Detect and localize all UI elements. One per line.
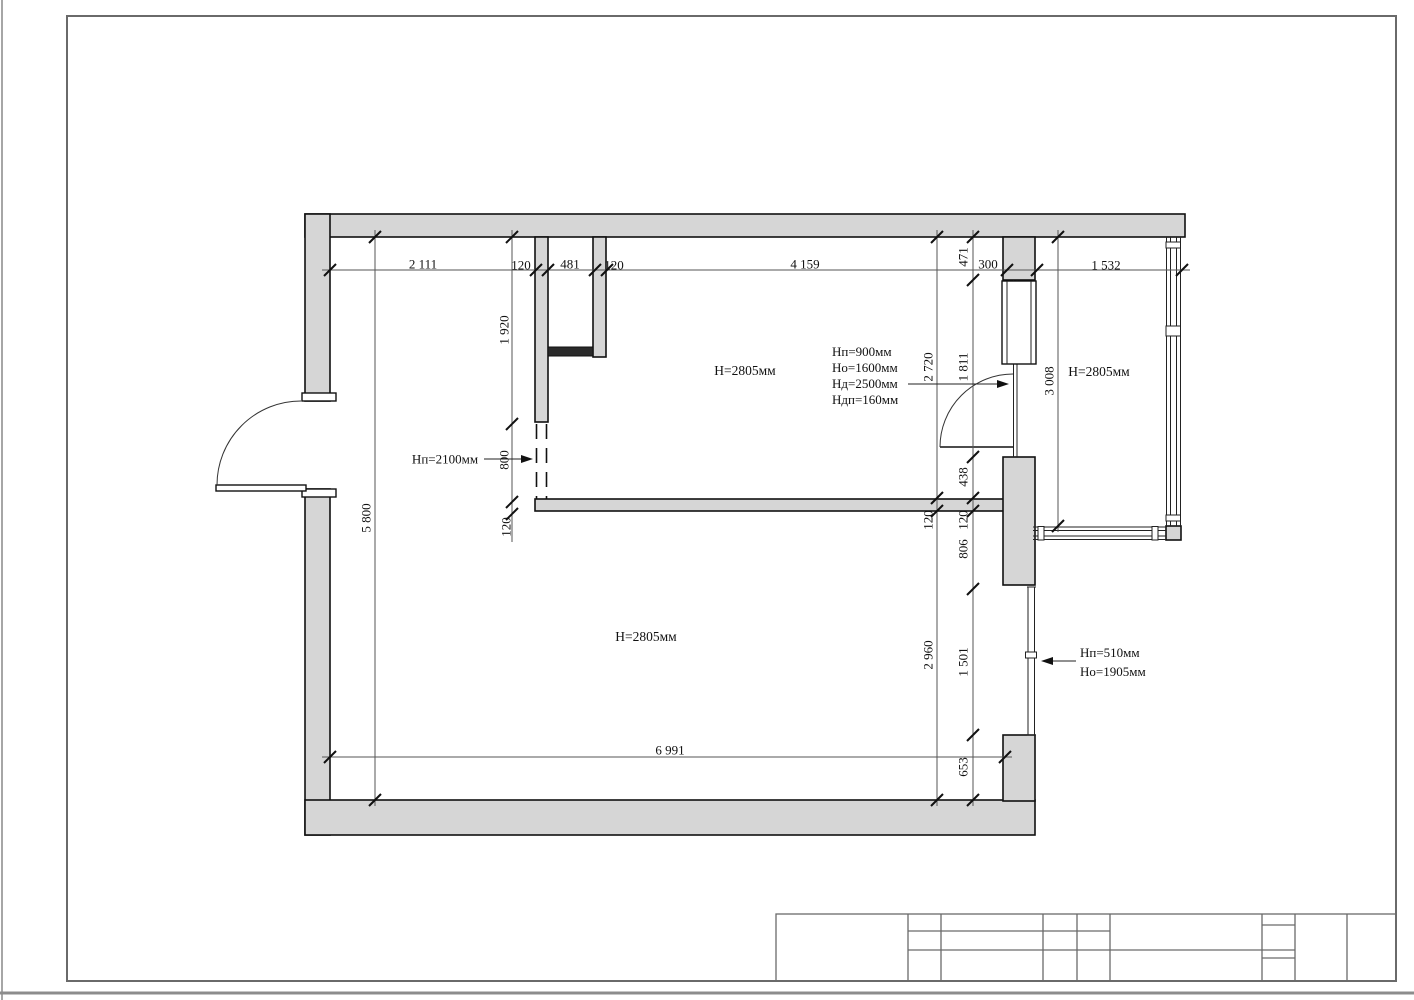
dim-label-2960: 2 960 (922, 640, 935, 669)
entry-door-leaf (216, 485, 306, 491)
dim-label-1920: 1 920 (498, 315, 511, 344)
dim-label-120-mid: 120 (922, 510, 935, 530)
dim-label-481: 481 (560, 258, 580, 271)
wall-bottom (305, 800, 1035, 835)
dim-label-120-left: 120 (500, 517, 513, 537)
dim-label-1532: 1 532 (1091, 259, 1120, 272)
window-note-line-1: Нп=510мм (1080, 645, 1140, 661)
door-note-line-2: Но=1600мм (832, 360, 898, 376)
dim-label-806: 806 (957, 539, 970, 559)
dim-label-2111: 2 111 (409, 258, 437, 271)
floor-plan-drawing (0, 0, 1414, 1000)
dim-label-4159: 4 159 (790, 258, 819, 271)
dimension-lines (322, 230, 1190, 806)
walls (305, 214, 1185, 835)
window-note-line-2: Но=1905мм (1080, 664, 1146, 680)
dim-label-471: 471 (957, 247, 970, 267)
dim-label-300: 300 (978, 258, 998, 271)
dim-label-120-top-b: 120 (604, 259, 624, 272)
balcony-corner-post (1166, 526, 1181, 540)
leader-lines (484, 384, 1076, 661)
dim-label-120-right: 120 (957, 510, 970, 530)
entry-jamb-lower (302, 489, 336, 497)
wall-top (305, 214, 1185, 237)
door-note-line-1: Нп=900мм (832, 344, 892, 360)
dim-label-1501: 1 501 (957, 647, 970, 676)
drawing-sheet: 2 111 120 481 120 4 159 300 1 532 6 991 … (0, 0, 1414, 1000)
dim-label-2720: 2 720 (922, 352, 935, 381)
dim-label-800: 800 (498, 450, 511, 470)
balcony-right-glazing (1166, 237, 1181, 526)
dim-label-3008: 3 008 (1043, 366, 1056, 395)
lower-right-window (1026, 587, 1037, 735)
room-door (940, 280, 1036, 457)
dim-label-6991: 6 991 (655, 744, 684, 757)
entry-door-arc (217, 401, 301, 485)
balcony-bottom-glazing (1033, 527, 1166, 541)
title-block (776, 914, 1396, 981)
balcony-height-label: Н=2805мм (1068, 365, 1129, 379)
shaft-bottom-bar (548, 347, 593, 356)
room2-height-label: Н=2805мм (615, 630, 676, 644)
wall-stub-right-top (1003, 237, 1035, 280)
dim-label-438: 438 (957, 467, 970, 487)
wall-pillar-right-bottom (1003, 735, 1035, 801)
entry-jamb-upper (302, 393, 336, 401)
wall-shaft-right (593, 237, 606, 357)
opening-note-label: Нп=2100мм (412, 453, 478, 466)
door-note-line-4: Ндп=160мм (832, 392, 898, 408)
dim-label-653: 653 (957, 757, 970, 777)
wall-pillar-right-mid (1003, 457, 1035, 585)
dashed-opening (537, 424, 547, 499)
entry-door (216, 393, 336, 497)
dim-label-1811: 1 811 (957, 353, 970, 382)
dim-label-120-top-a: 120 (511, 259, 531, 272)
room1-height-label: Н=2805мм (714, 364, 775, 378)
wall-left-lower (305, 489, 330, 835)
wall-left-upper (305, 214, 330, 401)
dim-label-5800: 5 800 (360, 503, 373, 532)
door-note-line-3: Нд=2500мм (832, 376, 898, 392)
